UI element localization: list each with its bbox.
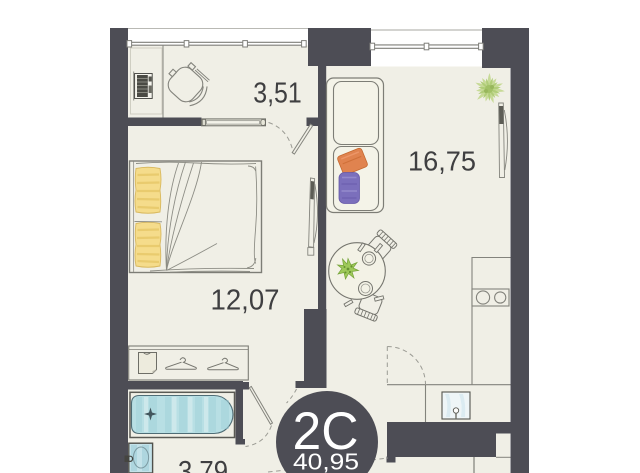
svg-text:3,79: 3,79: [178, 456, 228, 473]
svg-text:16,75: 16,75: [408, 146, 476, 177]
svg-text:12,07: 12,07: [211, 285, 280, 317]
svg-text:40,95: 40,95: [293, 449, 359, 473]
svg-text:3,51: 3,51: [253, 78, 302, 110]
